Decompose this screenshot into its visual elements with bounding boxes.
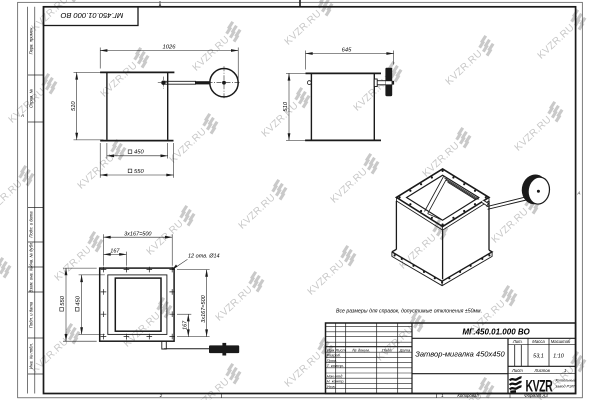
svg-text:Лит.: Лит. [512, 339, 523, 344]
svg-text:А: А [576, 191, 580, 196]
svg-text:Все размеры для справок, допус: Все размеры для справок, допустимые откл… [336, 308, 482, 314]
svg-text:510: 510 [71, 101, 77, 111]
svg-text:Затвор-мигалка 450х450: Затвор-мигалка 450х450 [415, 350, 505, 359]
svg-text:А: А [20, 113, 24, 118]
svg-text:МГ.450.01.000 ВО: МГ.450.01.000 ВО [462, 327, 530, 336]
svg-text:Масса: Масса [532, 339, 545, 344]
svg-text:510: 510 [283, 101, 289, 111]
svg-text:Масштаб: Масштаб [551, 339, 571, 344]
svg-text:3x167=500: 3x167=500 [124, 231, 152, 237]
svg-text:МГ.450.01.000 ВО: МГ.450.01.000 ВО [61, 11, 124, 20]
svg-text:53,1: 53,1 [533, 354, 544, 360]
svg-text:1026: 1026 [163, 45, 177, 51]
svg-text:№ докум.: № докум. [352, 347, 370, 352]
svg-text:завод РЭП: завод РЭП [555, 385, 575, 389]
svg-text:Справ. №: Справ. № [29, 89, 34, 108]
svg-text:167: 167 [183, 320, 189, 330]
svg-text:Подп. и дата: Подп. и дата [29, 301, 34, 328]
svg-text:KVZR: KVZR [526, 376, 553, 395]
svg-text:Т. контр.: Т. контр. [327, 363, 344, 368]
svg-text:3x167=500: 3x167=500 [201, 294, 207, 322]
svg-text:Дата: Дата [399, 347, 411, 352]
svg-text:450: 450 [76, 295, 82, 305]
svg-text:Инв. № подл.: Инв. № подл. [29, 343, 34, 369]
svg-text:Разраб.: Разраб. [327, 353, 341, 358]
svg-text:Формат А3: Формат А3 [524, 393, 548, 398]
svg-text:1:10: 1:10 [553, 354, 565, 360]
svg-text:12 отв. Ø14: 12 отв. Ø14 [188, 254, 220, 260]
svg-text:167: 167 [110, 249, 120, 255]
svg-text:Подп.: Подп. [382, 347, 393, 352]
svg-text:450: 450 [134, 150, 144, 156]
svg-text:Перв. примен.: Перв. примен. [29, 27, 34, 55]
svg-text:Взам. инв. №: Взам. инв. № [29, 266, 34, 292]
svg-text:Инв. № дубл.: Инв. № дубл. [29, 242, 34, 268]
svg-text:Листов: Листов [534, 368, 551, 373]
svg-text:645: 645 [342, 48, 352, 54]
svg-text:Лист: Лист [511, 368, 523, 373]
svg-text:550: 550 [134, 169, 144, 175]
svg-text:Котельный: Котельный [556, 379, 578, 383]
svg-text:550: 550 [60, 295, 66, 305]
svg-text:Подп. и дата: Подп. и дата [29, 211, 34, 238]
svg-text:1: 1 [564, 368, 566, 373]
svg-text:Копировал: Копировал [457, 393, 479, 398]
svg-text:Утв.: Утв. [327, 384, 336, 389]
